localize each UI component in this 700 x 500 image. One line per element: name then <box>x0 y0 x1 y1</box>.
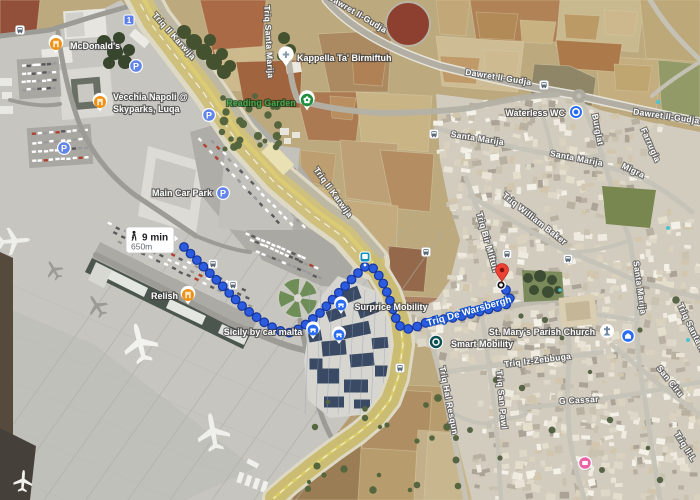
svg-text:Surprice Mobility: Surprice Mobility <box>354 302 427 312</box>
svg-text:1: 1 <box>127 16 132 25</box>
svg-text:Skyparks, Luqa: Skyparks, Luqa <box>113 104 181 114</box>
svg-text:P: P <box>133 61 139 71</box>
svg-text:Sicily by car malta: Sicily by car malta <box>224 327 304 337</box>
svg-text:G Cassar: G Cassar <box>559 394 600 406</box>
svg-text:Vecchia Napoli @: Vecchia Napoli @ <box>113 92 188 102</box>
svg-text:Relish: Relish <box>151 291 178 301</box>
svg-text:650m: 650m <box>131 242 152 252</box>
svg-text:Waterless WC: Waterless WC <box>505 108 565 118</box>
svg-text:Smart Mobility: Smart Mobility <box>451 339 513 349</box>
svg-text:Kappella Ta' Birmiftuh: Kappella Ta' Birmiftuh <box>297 53 391 63</box>
svg-text:P: P <box>61 143 67 153</box>
svg-text:P: P <box>220 188 226 198</box>
svg-text:Main Car Park: Main Car Park <box>152 188 213 198</box>
svg-text:McDonald's: McDonald's <box>70 41 120 51</box>
svg-text:Reading Garden: Reading Garden <box>226 98 296 108</box>
svg-text:P: P <box>206 110 212 120</box>
svg-text:St. Mary's Parish Church: St. Mary's Parish Church <box>489 327 595 337</box>
